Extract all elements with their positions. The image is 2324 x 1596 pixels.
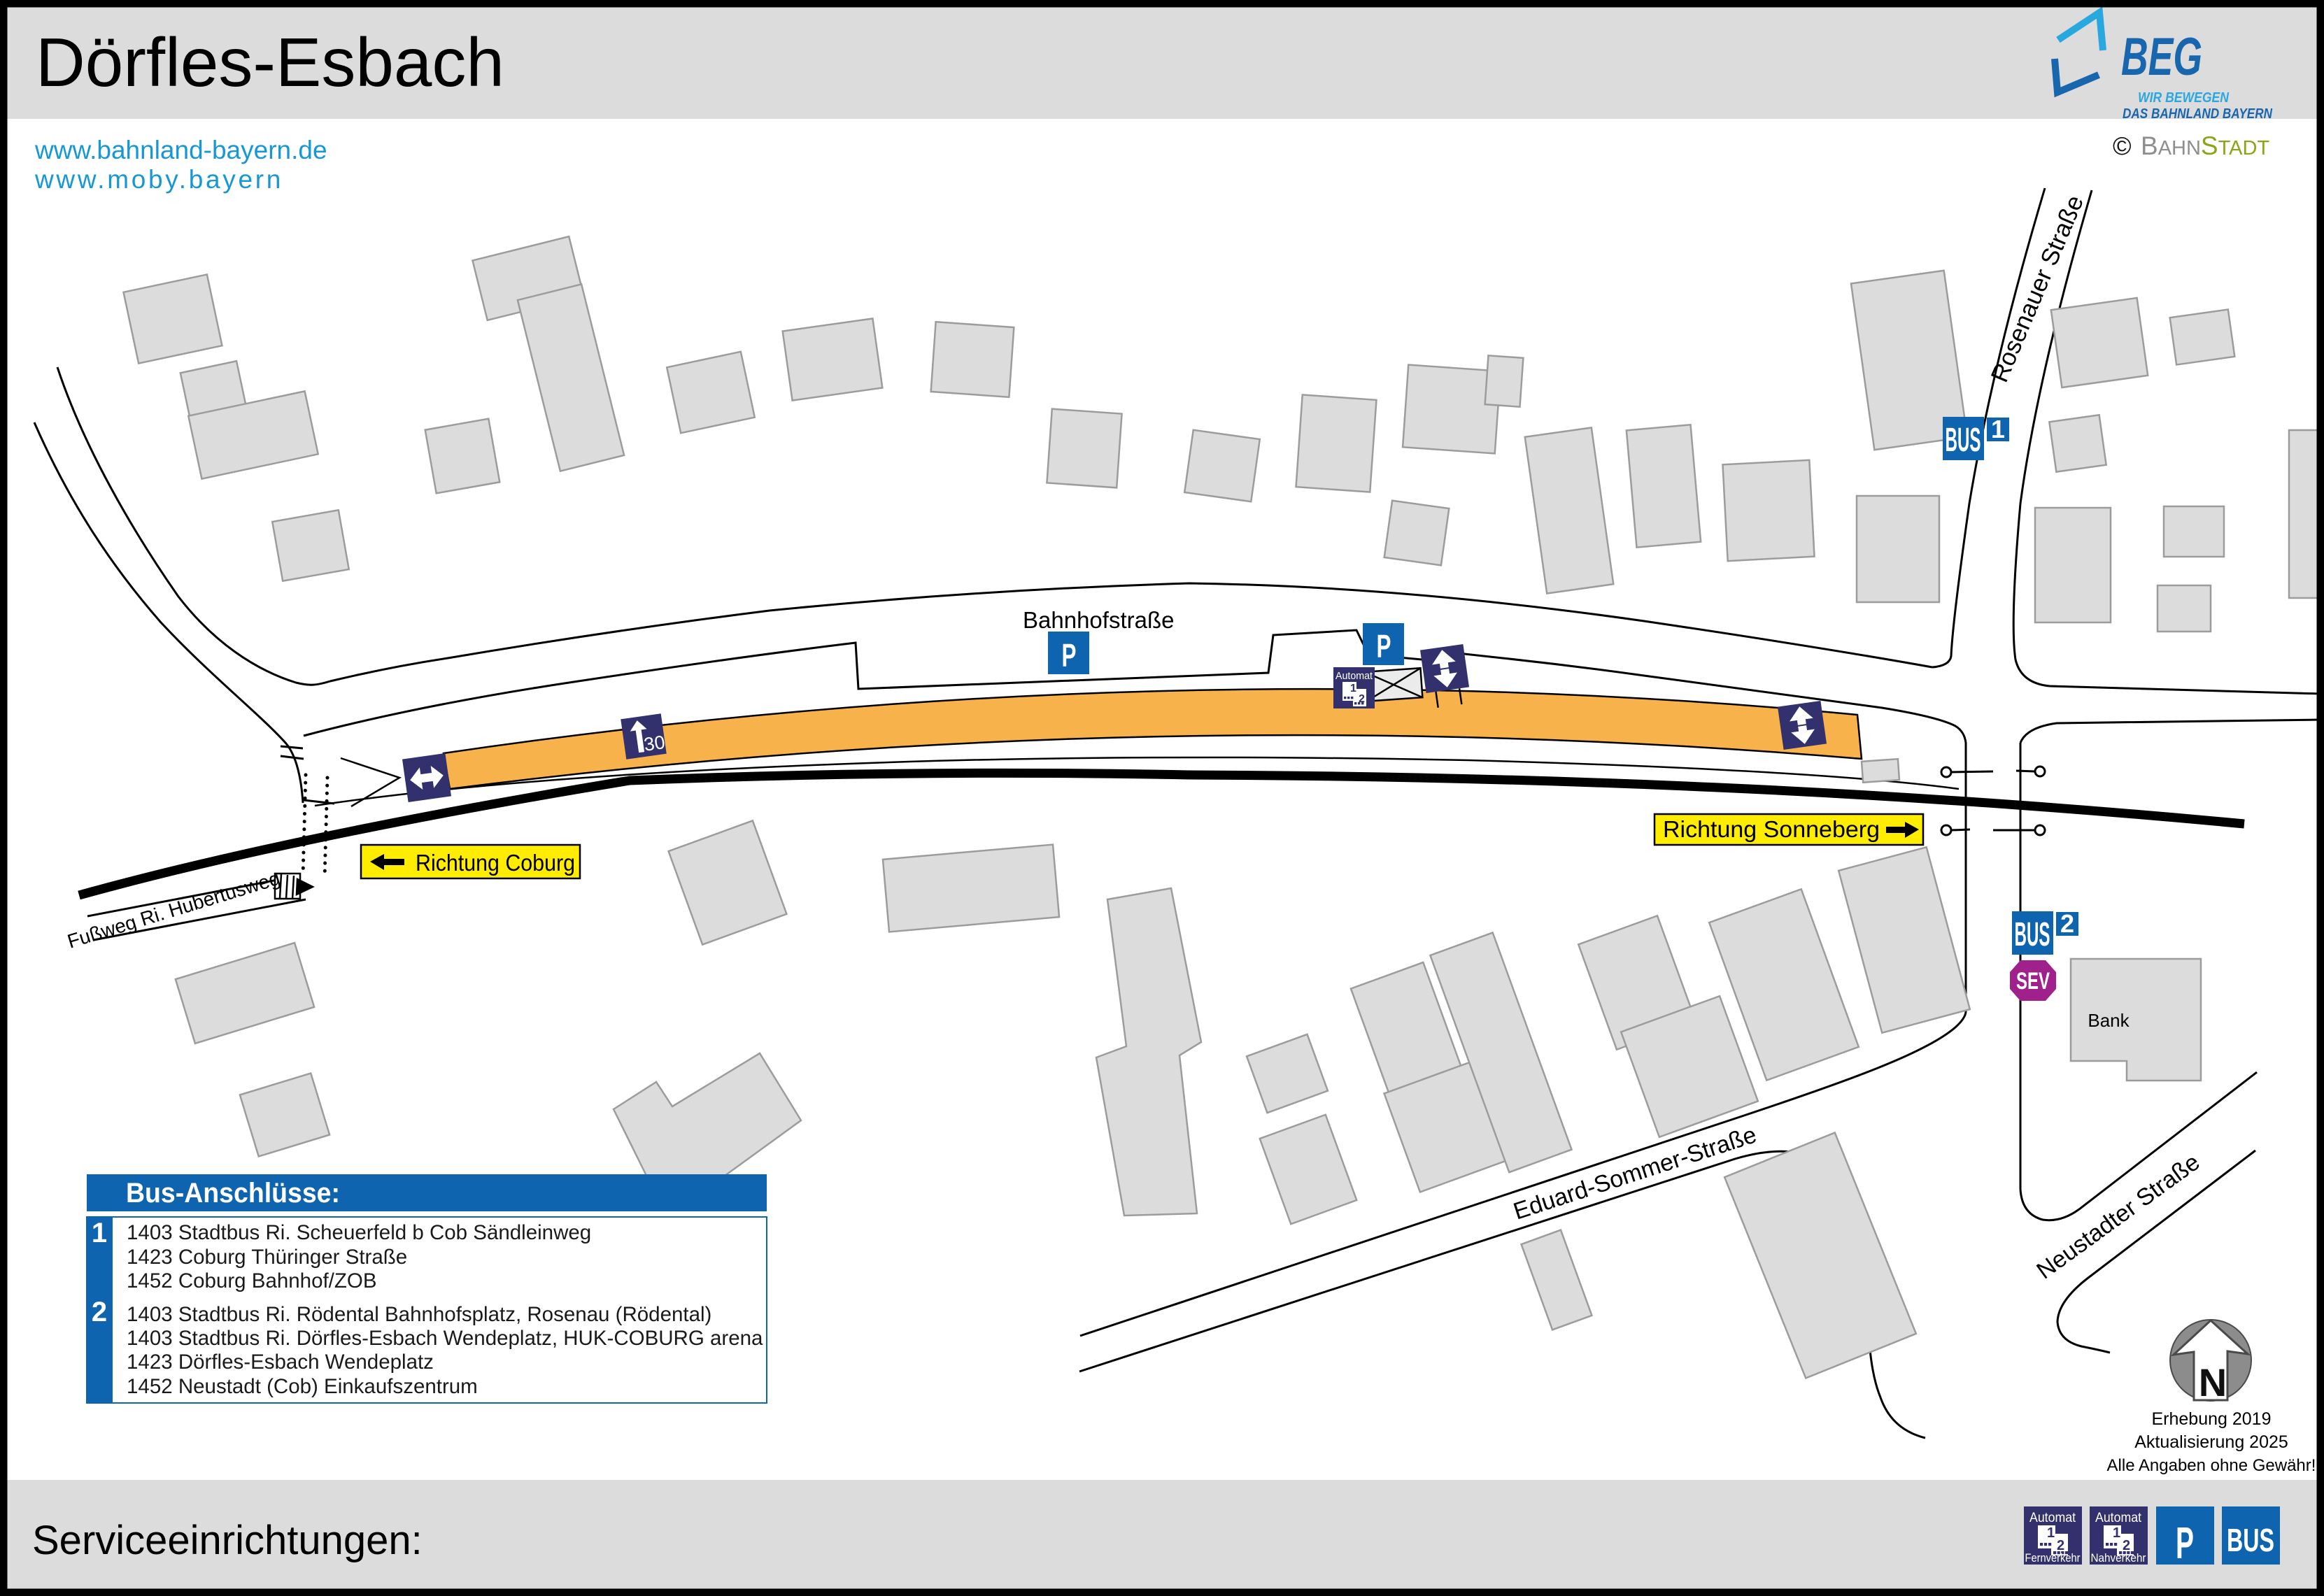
svg-text:P: P (1062, 637, 1077, 674)
svg-text:Nahverkehr: Nahverkehr (2091, 1551, 2146, 1565)
svg-text:WIR BEWEGEN: WIR BEWEGEN (2138, 90, 2229, 106)
svg-text:©: © (2113, 131, 2132, 160)
svg-text:1403 Stadtbus Ri. Rödental Bah: 1403 Stadtbus Ri. Rödental Bahnhofsplatz… (127, 1303, 711, 1326)
svg-text:30: 30 (643, 732, 667, 755)
svg-text:1: 1 (2113, 1525, 2120, 1541)
svg-text:Bus-Anschlüsse:: Bus-Anschlüsse: (126, 1178, 340, 1209)
svg-text:1: 1 (1991, 415, 2005, 443)
svg-text:Dörfles-Esbach: Dörfles-Esbach (36, 24, 504, 101)
svg-text:BUS: BUS (2227, 1522, 2274, 1558)
svg-text:Bahnhofstraße: Bahnhofstraße (1023, 607, 1174, 633)
svg-text:N: N (2199, 1360, 2227, 1404)
svg-text:1452 Neustadt (Cob) Einkaufsze: 1452 Neustadt (Cob) Einkaufszentrum (127, 1375, 478, 1398)
svg-text:2: 2 (92, 1297, 107, 1327)
svg-text:www.bahnland-bayern.de: www.bahnland-bayern.de (34, 136, 327, 164)
svg-text:Richtung Coburg: Richtung Coburg (416, 850, 575, 876)
svg-text:BUS: BUS (1946, 422, 1981, 459)
svg-text:Automat: Automat (2095, 1511, 2142, 1525)
svg-text:P: P (2176, 1518, 2194, 1568)
svg-text:Alle Angaben ohne Gewähr!: Alle Angaben ohne Gewähr! (2107, 1456, 2316, 1475)
svg-text:1423 Coburg Thüringer Straße: 1423 Coburg Thüringer Straße (127, 1246, 407, 1269)
svg-text:Bank: Bank (2088, 1010, 2130, 1031)
svg-text:2: 2 (2060, 909, 2074, 938)
svg-text:www.moby.bayern: www.moby.bayern (34, 165, 283, 194)
svg-text:1423 Dörfles-Esbach Wendeplatz: 1423 Dörfles-Esbach Wendeplatz (127, 1351, 434, 1374)
svg-text:Automat: Automat (2029, 1511, 2076, 1525)
svg-text:1452 Coburg Bahnhof/ZOB: 1452 Coburg Bahnhof/ZOB (127, 1269, 377, 1292)
svg-text:1403 Stadtbus Ri. Scheuerfeld: 1403 Stadtbus Ri. Scheuerfeld b Cob Sänd… (127, 1221, 591, 1244)
svg-text:Automat: Automat (1335, 670, 1373, 682)
svg-text:DAS BAHNLAND BAYERN: DAS BAHNLAND BAYERN (2123, 106, 2272, 122)
svg-text:Fernverkehr: Fernverkehr (2025, 1551, 2081, 1565)
svg-text:Aktualisierung 2025: Aktualisierung 2025 (2134, 1432, 2288, 1452)
svg-text:1: 1 (2047, 1525, 2055, 1541)
svg-text:Erhebung 2019: Erhebung 2019 (2152, 1409, 2272, 1429)
svg-text:1403 Stadtbus Ri. Dörfles-Esba: 1403 Stadtbus Ri. Dörfles-Esbach Wendepl… (127, 1327, 763, 1350)
svg-text:P: P (1377, 628, 1391, 664)
svg-text:BUS: BUS (2015, 916, 2050, 953)
svg-text:BEG: BEG (2121, 27, 2202, 87)
svg-text:SEV: SEV (2016, 968, 2050, 995)
svg-text:1: 1 (1350, 683, 1356, 694)
svg-text:Richtung Sonneberg: Richtung Sonneberg (1663, 816, 1880, 842)
svg-text:1: 1 (92, 1218, 107, 1248)
svg-text:Serviceeinrichtungen:: Serviceeinrichtungen: (32, 1518, 423, 1563)
